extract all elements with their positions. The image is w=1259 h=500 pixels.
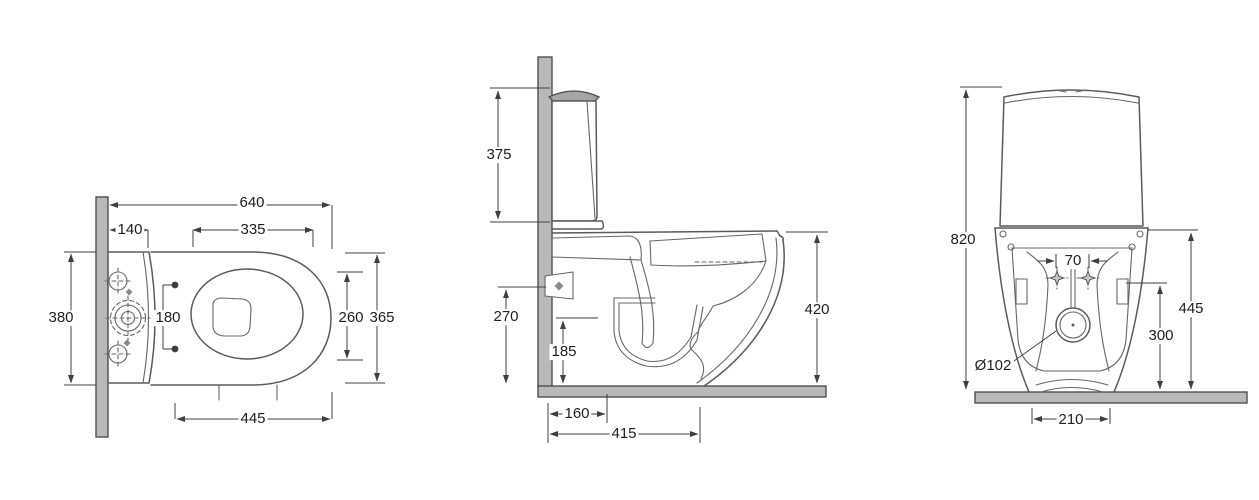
fixing-star-left bbox=[1046, 267, 1068, 289]
dim-seat-width-label: 365 bbox=[367, 310, 396, 326]
dim-pan-projection-label: 445 bbox=[238, 411, 267, 427]
dim-cistern-height-label: 375 bbox=[484, 147, 513, 163]
hinge-point-bottom bbox=[172, 346, 179, 353]
drain-center-dot bbox=[1072, 324, 1075, 327]
trapway-outer bbox=[614, 298, 703, 367]
dim-hinge-spacing-label: 180 bbox=[153, 310, 182, 326]
dim-fixing-spacing-label: 70 bbox=[1063, 253, 1084, 269]
flush-downpipe-left bbox=[630, 257, 643, 343]
cistern-body bbox=[552, 101, 597, 221]
sump-outline bbox=[213, 298, 251, 336]
dim-overall-width-label: 380 bbox=[46, 310, 75, 326]
drain-leader-line bbox=[1014, 331, 1056, 361]
dim-rear-rim-height-label: 445 bbox=[1176, 301, 1205, 317]
foot-arc-upper bbox=[1036, 380, 1108, 386]
seat-shelf bbox=[650, 234, 766, 266]
screw-hole bbox=[1000, 231, 1006, 237]
flush-downpipe-tip bbox=[642, 343, 653, 348]
dim-inlet-height-label: 270 bbox=[491, 309, 520, 325]
inner-contour-left bbox=[1027, 252, 1048, 371]
floor bbox=[975, 392, 1247, 403]
rim-top bbox=[552, 231, 777, 233]
dim-bowl-width-label: 260 bbox=[336, 310, 365, 326]
dim-overall-length-label: 640 bbox=[237, 195, 266, 211]
dim-overall-height-label: 820 bbox=[948, 232, 977, 248]
fixing-star-right bbox=[1077, 267, 1099, 289]
shell-inner-parallel bbox=[697, 238, 777, 383]
floor bbox=[538, 386, 826, 397]
bowl-inner-contour bbox=[690, 261, 766, 379]
dim-rim-height-label: 420 bbox=[802, 302, 831, 318]
trapway-inner bbox=[619, 303, 697, 362]
dim-side-height-label: 300 bbox=[1146, 328, 1175, 344]
dim-trap-height-label: 185 bbox=[549, 344, 578, 360]
body-side-right bbox=[1114, 228, 1148, 392]
side-view bbox=[490, 57, 828, 443]
hinge-point-top bbox=[172, 282, 179, 289]
dim-seat-opening-label: 335 bbox=[238, 222, 267, 238]
toilet-dimension-drawing: 640 140 335 380 180 260 365 445 375 270 … bbox=[0, 0, 1259, 500]
dim-base-depth-label: 415 bbox=[609, 426, 638, 442]
rim-flush-channel bbox=[552, 236, 641, 260]
screw-hole bbox=[1137, 231, 1143, 237]
dim-cistern-depth-label: 140 bbox=[115, 222, 144, 238]
cistern-base bbox=[552, 221, 604, 229]
wall bbox=[96, 197, 108, 437]
inner-contour-right bbox=[1097, 252, 1118, 371]
rim-front-step bbox=[777, 231, 783, 240]
cistern-outline bbox=[1000, 90, 1143, 226]
screw-hole bbox=[1008, 244, 1014, 250]
seat-opening bbox=[191, 269, 303, 359]
dim-base-width-label: 210 bbox=[1056, 412, 1085, 428]
dim-outlet-diameter-label: Ø102 bbox=[973, 358, 1014, 374]
dim-outlet-setout-label: 160 bbox=[562, 406, 591, 422]
side-tab-left bbox=[1016, 279, 1027, 304]
cistern-lid bbox=[549, 91, 599, 101]
